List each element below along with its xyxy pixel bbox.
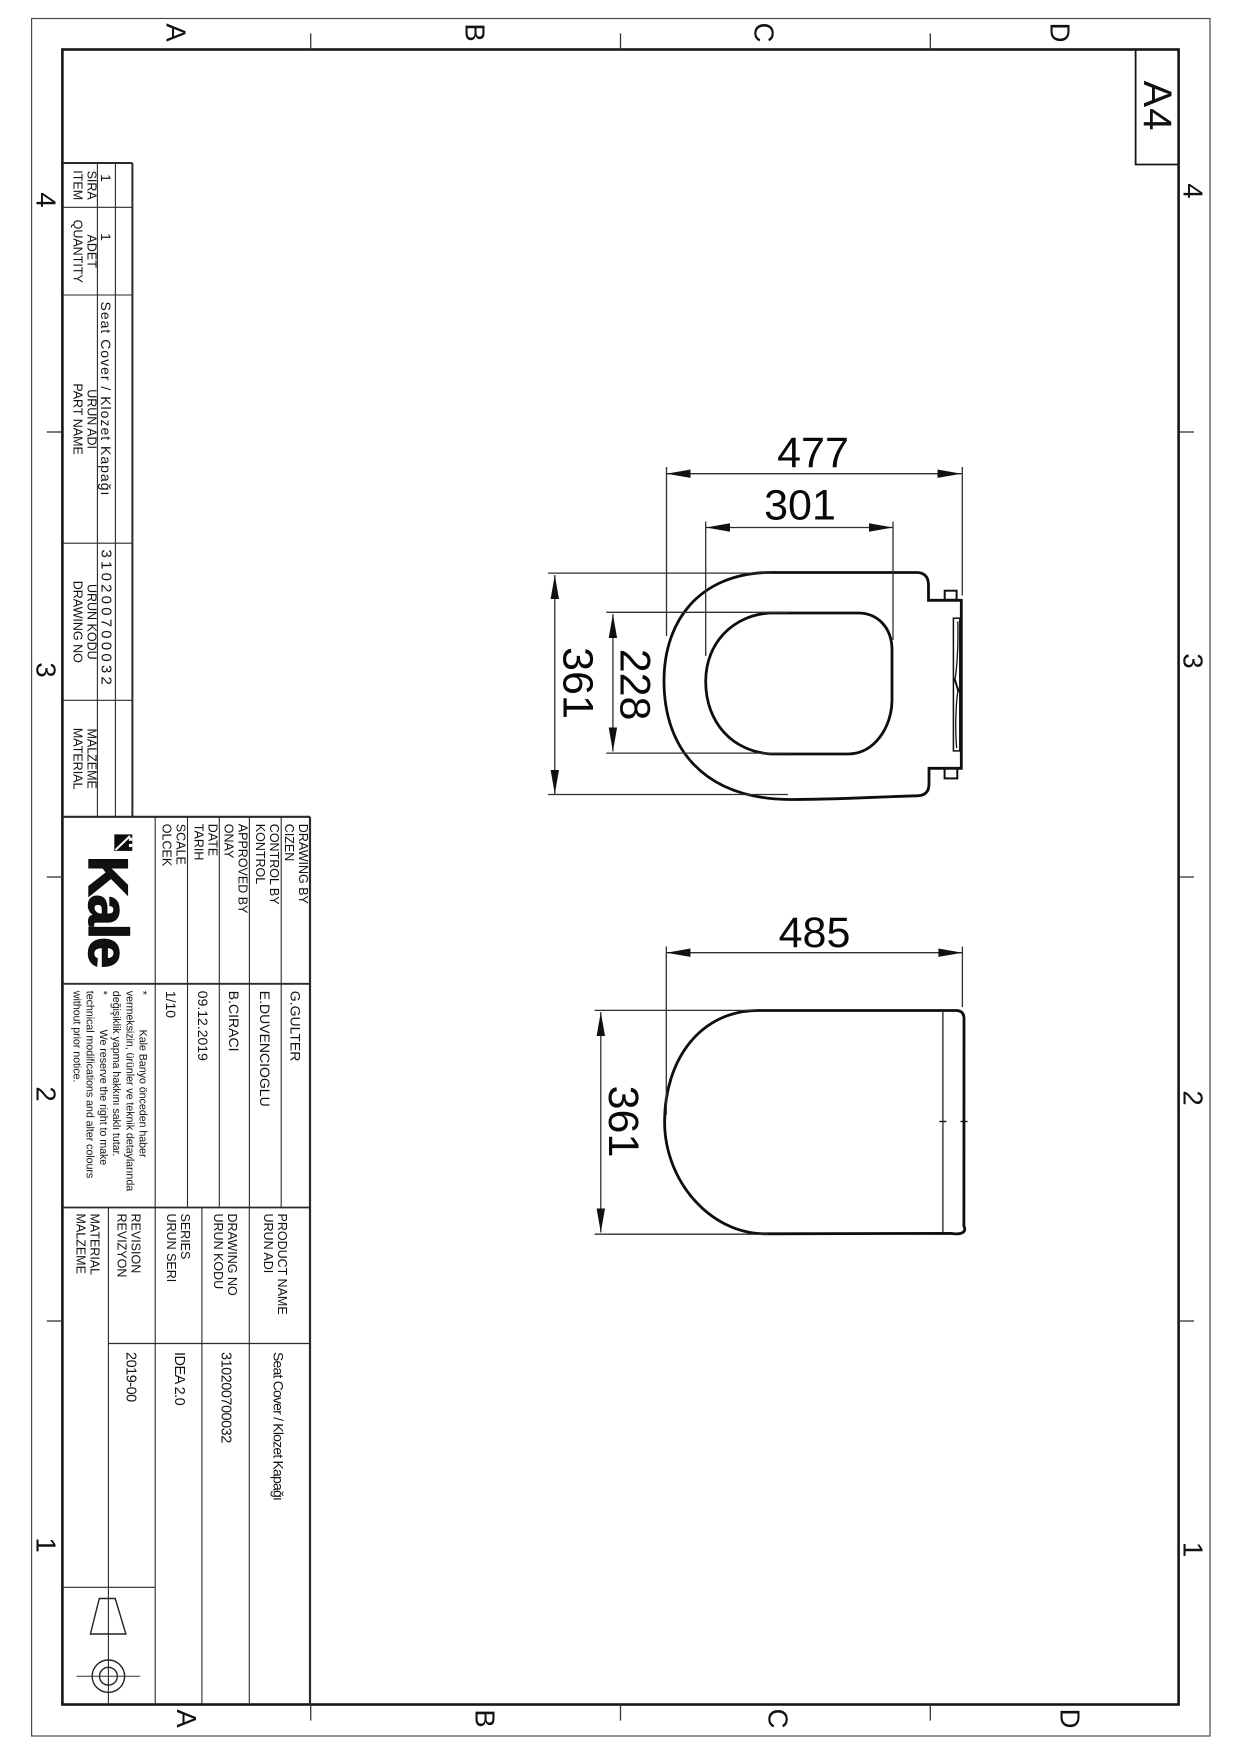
svg-text:228: 228 (611, 649, 659, 721)
svg-text:URUN ADI: URUN ADI (85, 389, 99, 449)
svg-text:310200700032: 310200700032 (98, 550, 115, 689)
svg-text:1: 1 (98, 174, 114, 182)
svg-text:DRAWING NO: DRAWING NO (225, 1214, 239, 1296)
svg-text:SERIES: SERIES (178, 1214, 192, 1260)
svg-text:B: B (470, 1709, 501, 1727)
svg-text:ADET: ADET (85, 235, 99, 269)
svg-text:2: 2 (1178, 1090, 1209, 1105)
svg-text:vermeksizin, ürünler ve teknik: vermeksizin, ürünler ve teknik detayları… (123, 991, 135, 1191)
svg-text:URUN ADI: URUN ADI (261, 1214, 275, 1274)
svg-text:A: A (171, 1709, 202, 1728)
svg-text:ONAY: ONAY (221, 824, 235, 859)
svg-text:485: 485 (779, 909, 851, 957)
svg-text:1: 1 (31, 1537, 62, 1552)
svg-text:361: 361 (599, 1086, 647, 1158)
svg-text:09.12.2019: 09.12.2019 (195, 991, 211, 1061)
svg-text:CONTROL BY: CONTROL BY (267, 824, 281, 905)
svg-text:MALZEME: MALZEME (85, 728, 99, 788)
svg-text:URUN KODU: URUN KODU (85, 584, 99, 660)
svg-text:A4: A4 (1135, 81, 1179, 132)
svg-text:1: 1 (1178, 1542, 1209, 1557)
svg-text:2019-00: 2019-00 (123, 1352, 139, 1402)
svg-text:MATERIAL: MATERIAL (71, 728, 85, 790)
svg-text:Kale: Kale (77, 856, 140, 967)
svg-text:without prior notice.: without prior notice. (71, 990, 83, 1083)
svg-text:URUN KODU: URUN KODU (211, 1214, 225, 1290)
svg-text:technical modifications and al: technical modifications and alter colour… (84, 991, 96, 1179)
svg-text:4: 4 (31, 192, 62, 207)
svg-text:G.GULTER: G.GULTER (287, 991, 303, 1062)
svg-text:KONTROL: KONTROL (253, 824, 267, 884)
svg-text:OLCEK: OLCEK (160, 824, 174, 867)
svg-text:310200700032: 310200700032 (218, 1352, 234, 1443)
svg-text:DATE: DATE (205, 824, 219, 856)
svg-text:IDEA 2.0: IDEA 2.0 (171, 1352, 187, 1406)
svg-text:361: 361 (554, 647, 602, 719)
svg-text:A: A (161, 23, 192, 42)
svg-text:3: 3 (1178, 653, 1209, 668)
svg-text:E.DUVENCIOGLU: E.DUVENCIOGLU (257, 991, 273, 1107)
svg-text:DRAWING NO: DRAWING NO (71, 581, 85, 663)
svg-text:SIRA: SIRA (85, 171, 99, 201)
svg-text:değişiklik yapma hakkını saklı: değişiklik yapma hakkını saklı tutar. (110, 991, 122, 1157)
svg-text:D: D (1045, 23, 1076, 43)
svg-text:CIZEN: CIZEN (282, 824, 296, 862)
svg-text:Seat Cover / Klozet Kapağı: Seat Cover / Klozet Kapağı (271, 1352, 287, 1500)
svg-text:301: 301 (764, 482, 836, 530)
svg-text:TARIH: TARIH (191, 824, 205, 861)
svg-text:B.CIRACI: B.CIRACI (226, 991, 242, 1052)
svg-text:Seat Cover / Klozet Kapağı: Seat Cover / Klozet Kapağı (98, 302, 114, 497)
svg-text:URUN SERI: URUN SERI (164, 1214, 178, 1283)
svg-text:2: 2 (31, 1086, 62, 1101)
svg-text:PART NAME: PART NAME (71, 383, 85, 455)
svg-text:1: 1 (98, 233, 114, 241)
svg-text:MATERIAL: MATERIAL (88, 1214, 102, 1276)
svg-text:3: 3 (31, 662, 62, 677)
svg-text:We reserve the right to make: We reserve the right to make (97, 1030, 109, 1166)
svg-text:MALZEME: MALZEME (74, 1214, 88, 1274)
svg-text:PRODUCT NAME: PRODUCT NAME (275, 1214, 289, 1315)
svg-text:C: C (749, 23, 780, 43)
svg-text:1/10: 1/10 (163, 991, 179, 1018)
svg-text:477: 477 (777, 429, 849, 477)
svg-text:C: C (763, 1709, 794, 1729)
svg-text:D: D (1055, 1709, 1086, 1729)
svg-text:B: B (460, 23, 491, 41)
svg-text:QUANTITY: QUANTITY (71, 220, 85, 284)
svg-text:REVISION: REVISION (128, 1214, 142, 1274)
svg-text:Kale Banyo önceden haber: Kale Banyo önceden haber (137, 1030, 149, 1158)
svg-text:REVIZYON: REVIZYON (114, 1214, 128, 1278)
svg-text:4: 4 (1178, 183, 1209, 198)
svg-text:DRAWING BY: DRAWING BY (296, 824, 310, 905)
svg-text:ITEM: ITEM (71, 170, 85, 200)
svg-text:SCALE: SCALE (174, 824, 188, 865)
svg-text:APPROVED BY: APPROVED BY (235, 824, 249, 914)
